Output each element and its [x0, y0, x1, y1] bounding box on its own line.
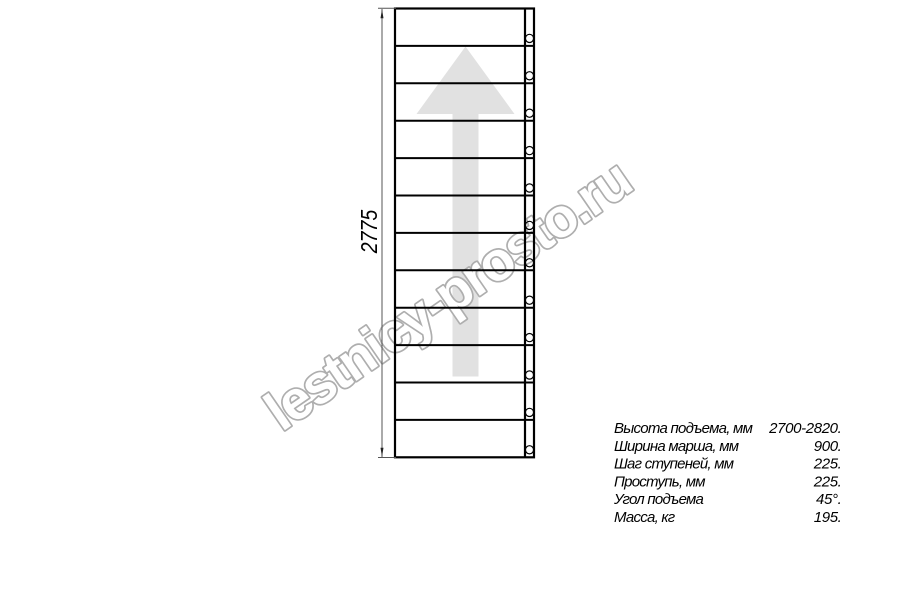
svg-text:2700-2820.: 2700-2820.	[768, 420, 841, 437]
svg-text:225.: 225.	[813, 456, 842, 473]
svg-text:Масса, кг: Масса, кг	[614, 509, 676, 526]
svg-text:Угол подъема: Угол подъема	[613, 491, 704, 508]
svg-text:Шаг ступеней, мм: Шаг ступеней, мм	[614, 456, 734, 473]
svg-text:Ширина марша, мм: Ширина марша, мм	[614, 438, 739, 455]
svg-text:900.: 900.	[814, 438, 842, 455]
svg-text:45°.: 45°.	[816, 491, 841, 508]
svg-text:Проступь, мм: Проступь, мм	[614, 473, 705, 490]
svg-text:195.: 195.	[814, 509, 842, 526]
svg-text:2775: 2775	[357, 210, 383, 254]
svg-text:lestnicy-prosto.ru: lestnicy-prosto.ru	[253, 148, 641, 442]
svg-text:225.: 225.	[813, 473, 842, 490]
svg-text:Высота подъема, мм: Высота подъема, мм	[614, 420, 753, 437]
